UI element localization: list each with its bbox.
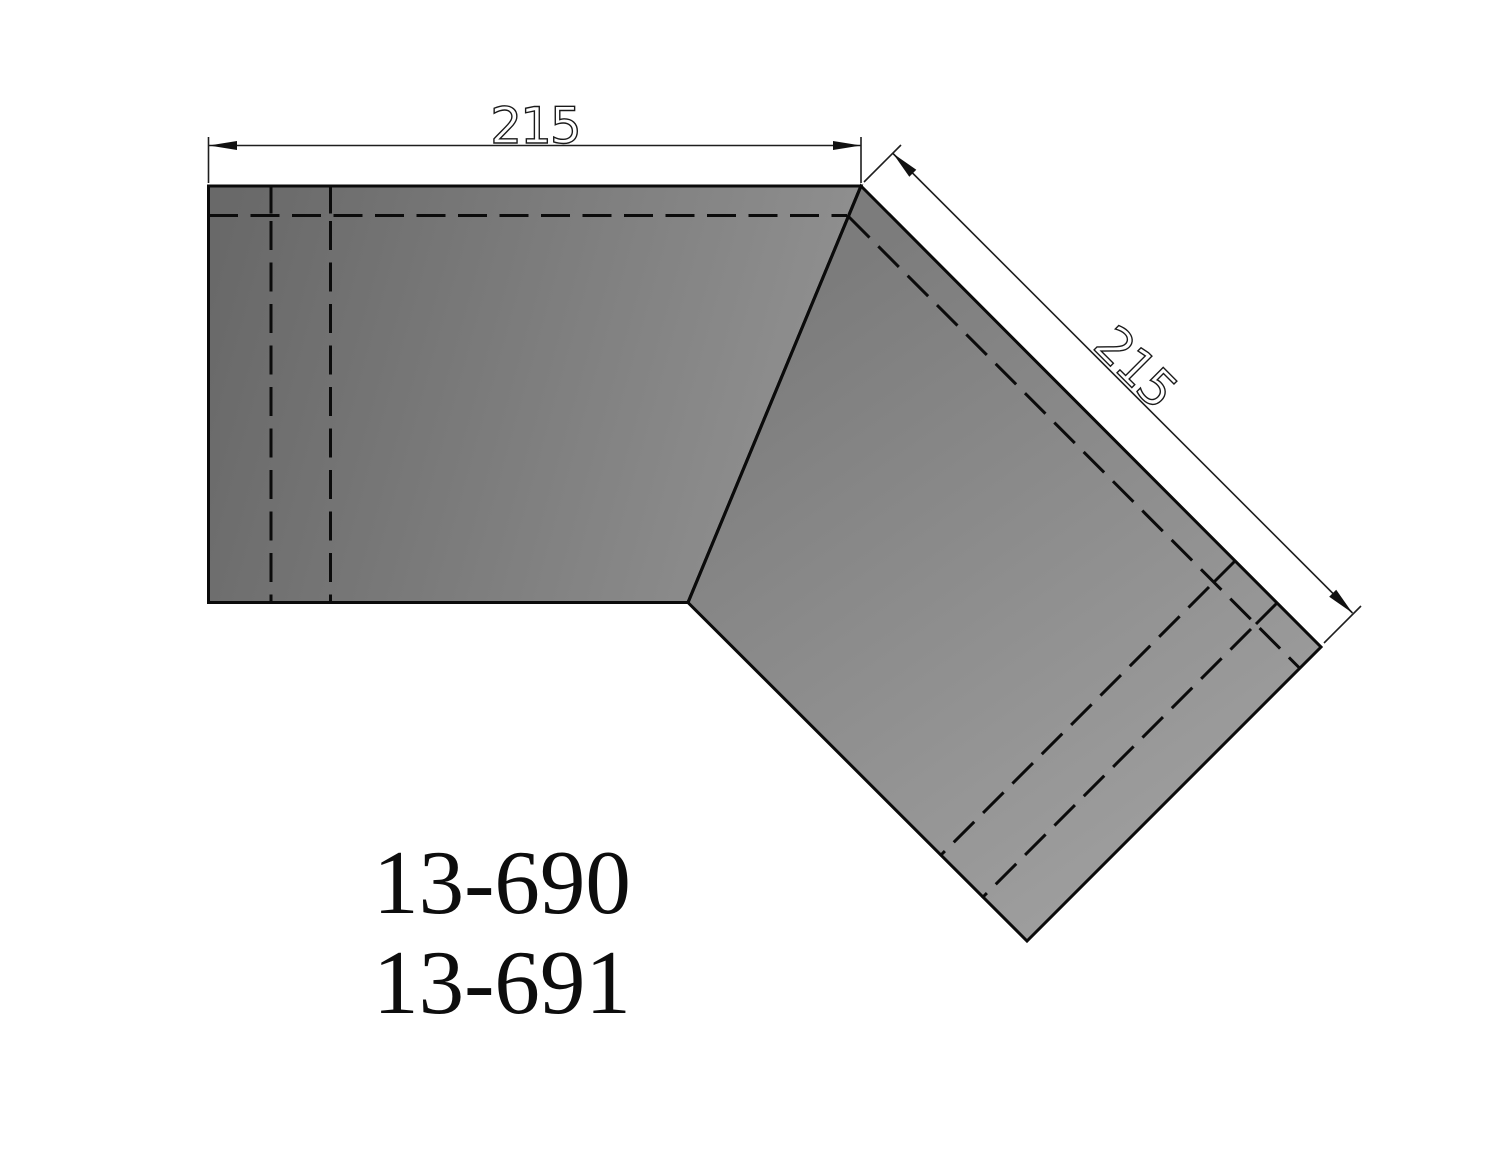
technical-drawing: 215 215 13-690 13-691 <box>0 0 1500 1169</box>
diagonal-dimension-value: 215 <box>1083 315 1187 419</box>
diagonal-dimension-extension-line-start <box>864 145 901 182</box>
part-number-group: 13-690 13-691 <box>373 832 631 1033</box>
top-dimension-arrowhead-right-icon <box>833 141 861 150</box>
diagonal-dimension-extension-line-end <box>1324 606 1361 643</box>
top-dimension-arrowhead-left-icon <box>209 141 237 150</box>
panel-group <box>209 186 1322 941</box>
part-number-2: 13-691 <box>373 932 631 1033</box>
top-dimension-group: 215 <box>209 97 862 183</box>
top-dimension-value: 215 <box>490 97 579 155</box>
drawing-canvas: 215 215 13-690 13-691 <box>0 0 1500 1169</box>
part-number-1: 13-690 <box>373 832 631 933</box>
